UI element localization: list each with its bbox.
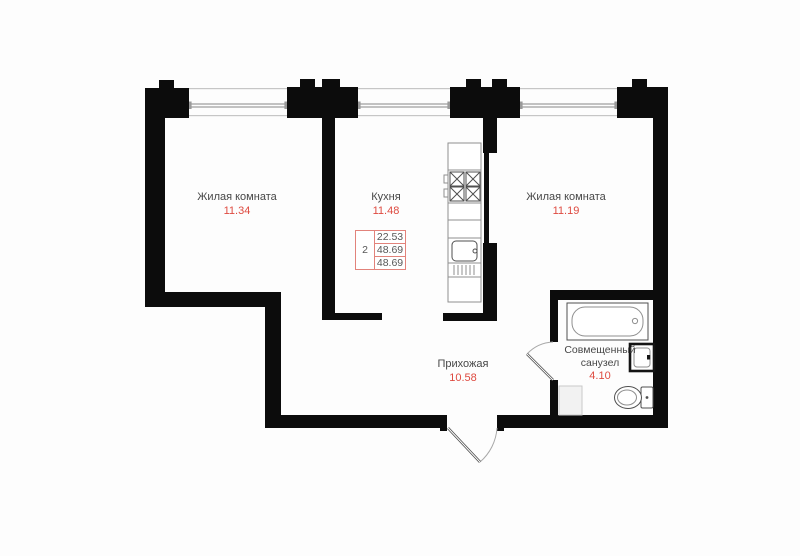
room-label-living-right: Жилая комната 11.19 [526,191,605,218]
room-name: Кухня [371,191,400,204]
floor-plan: Жилая комната 11.34 Кухня 11.48 Жилая ко… [0,0,800,556]
stamp-rooms-count: 2 [355,230,375,270]
room-area: 11.19 [526,205,605,218]
stamp-total-area-with-balcony: 48.69 [374,256,406,270]
room-name: Жилая комната [526,191,605,204]
kitchen-counter-icon [444,143,481,302]
floor-plan-drawing [0,0,800,556]
entrance-door-icon [448,428,497,462]
window [189,88,617,116]
room-label-hallway: Прихожая 10.58 [438,358,489,385]
stamp-living-area: 22.53 [374,230,406,244]
room-area: 11.48 [371,205,400,218]
stamp-total-area: 48.69 [374,243,406,257]
stamp-areas: 22.53 48.69 48.69 [374,230,406,270]
ventilation-shaft [559,386,582,415]
room-area: 4.10 [550,370,650,383]
apartment-stamp: 2 22.53 48.69 48.69 [355,230,406,270]
bathtub-icon [567,303,648,340]
room-area: 11.34 [197,205,276,218]
room-label-bathroom: Совмещенный санузел 4.10 [550,344,650,383]
room-name: Совмещенный санузел [550,344,650,369]
room-name: Жилая комната [197,191,276,204]
room-label-living-left: Жилая комната 11.34 [197,191,276,218]
toilet-icon [615,387,654,409]
room-area: 10.58 [438,372,489,385]
room-label-kitchen: Кухня 11.48 [371,191,400,218]
room-name: Прихожая [438,358,489,371]
